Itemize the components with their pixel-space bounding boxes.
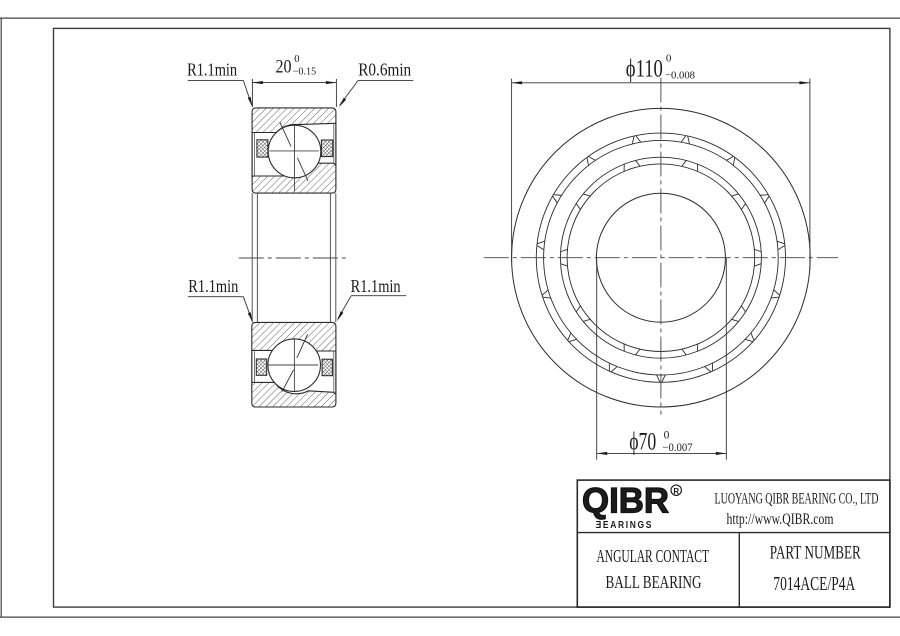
svg-text:0: 0 [294,54,299,65]
svg-text:ANGULAR CONTACT: ANGULAR CONTACT [597,546,710,566]
svg-text:http://www.QIBR.com: http://www.QIBR.com [727,511,834,528]
svg-text:20: 20 [276,57,292,78]
svg-text:LUOYANG QIBR BEARING CO., LTD: LUOYANG QIBR BEARING CO., LTD [715,490,879,507]
svg-text:−0.008: −0.008 [665,70,695,82]
svg-text:ƎEARINGS: ƎEARINGS [596,520,654,531]
svg-text:7014ACE/P4A: 7014ACE/P4A [773,574,855,595]
svg-text:−0.007: −0.007 [663,442,693,454]
svg-text:PART NUMBER: PART NUMBER [770,543,861,563]
svg-text:R1.1min: R1.1min [188,276,238,296]
svg-text:BALL BEARING: BALL BEARING [606,572,702,592]
svg-text:R1.1min: R1.1min [351,276,401,296]
svg-text:R0.6min: R0.6min [358,60,411,80]
svg-text:R: R [673,487,679,496]
svg-text:0: 0 [666,53,672,65]
svg-text:QIBR: QIBR [582,482,669,521]
svg-text:ϕ110: ϕ110 [626,56,663,83]
svg-text:ϕ70: ϕ70 [629,429,656,456]
svg-text:−0.15: −0.15 [293,66,317,77]
svg-text:0: 0 [664,430,670,442]
svg-text:R1.1min: R1.1min [187,60,237,80]
